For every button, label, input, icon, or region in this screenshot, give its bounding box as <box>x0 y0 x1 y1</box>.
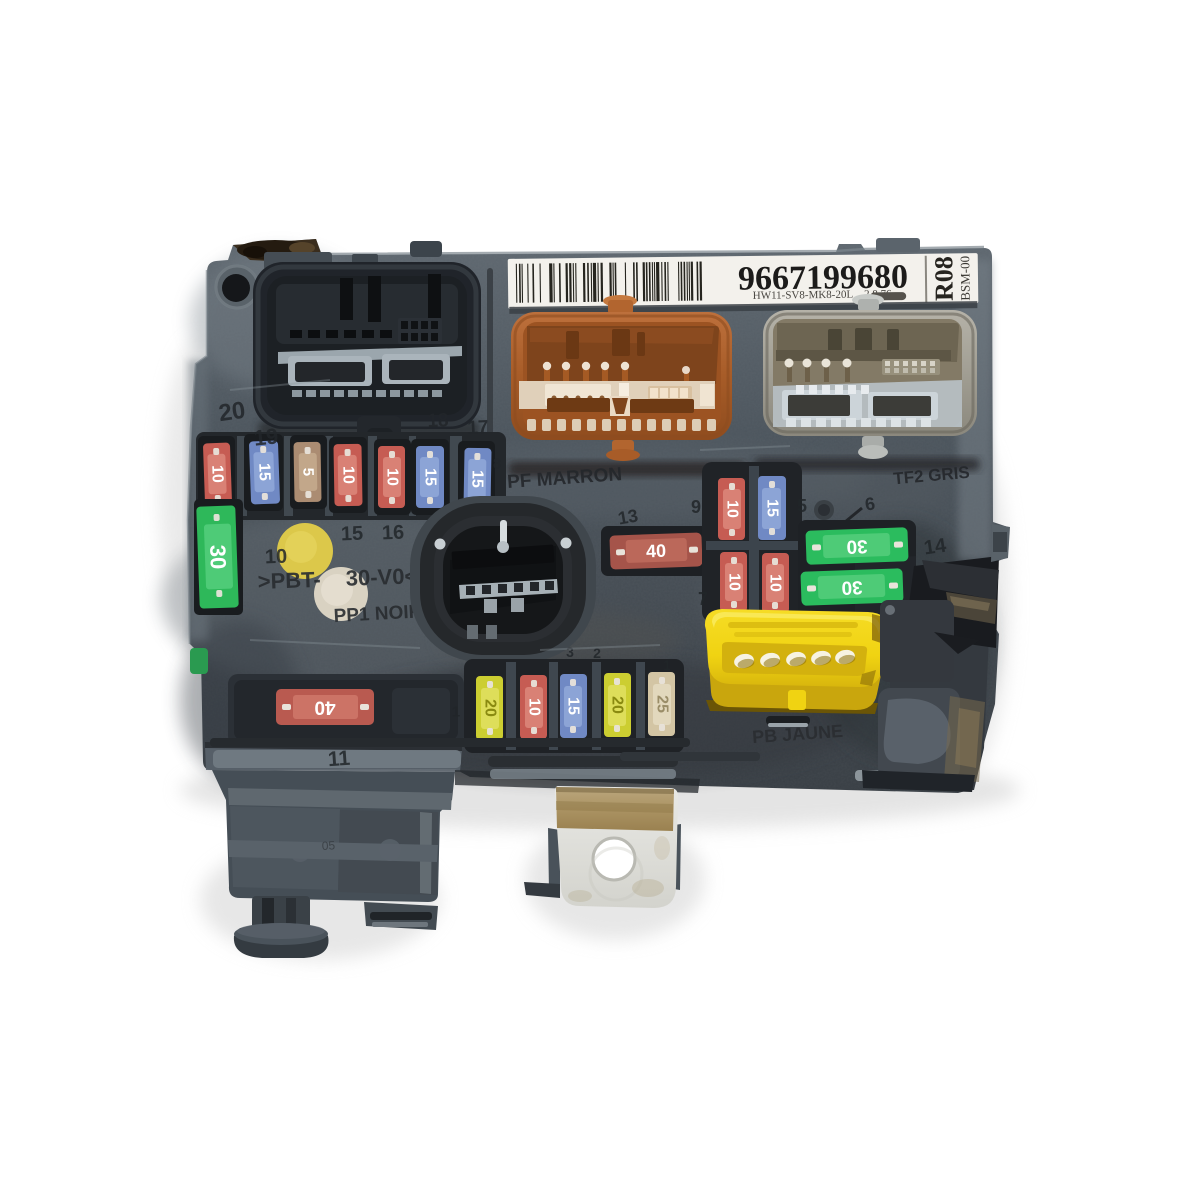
svg-text:>PBT-: >PBT- <box>257 567 321 594</box>
svg-text:20: 20 <box>609 696 626 714</box>
svg-text:18: 18 <box>427 410 449 432</box>
svg-text:14: 14 <box>922 534 948 559</box>
svg-text:15: 15 <box>255 463 273 481</box>
svg-text:19: 19 <box>253 423 280 450</box>
svg-text:10: 10 <box>339 466 356 484</box>
svg-text:5: 5 <box>299 468 316 477</box>
svg-text:10: 10 <box>384 468 401 486</box>
svg-text:15: 15 <box>764 499 781 517</box>
svg-text:05: 05 <box>321 838 335 853</box>
svg-text:10: 10 <box>208 465 226 483</box>
svg-text:40: 40 <box>314 697 335 718</box>
svg-text:30-V0<: 30-V0< <box>345 563 417 590</box>
svg-text:11: 11 <box>327 747 351 772</box>
svg-text:17: 17 <box>467 417 489 439</box>
svg-text:10: 10 <box>264 546 287 569</box>
svg-text:30: 30 <box>205 544 231 569</box>
svg-text:7: 7 <box>698 589 708 609</box>
svg-text:30: 30 <box>841 576 863 598</box>
svg-text:20: 20 <box>482 699 499 717</box>
svg-text:10: 10 <box>526 698 543 716</box>
svg-text:5: 5 <box>797 496 807 516</box>
svg-text:20: 20 <box>217 397 247 427</box>
svg-text:9: 9 <box>691 497 701 517</box>
svg-text:15: 15 <box>565 697 582 715</box>
svg-text:8: 8 <box>493 456 501 473</box>
svg-text:13: 13 <box>616 505 639 528</box>
svg-text:30: 30 <box>846 535 868 557</box>
svg-text:BSM-00: BSM-00 <box>957 256 973 301</box>
svg-text:1: 1 <box>452 704 460 721</box>
svg-text:15: 15 <box>422 468 439 486</box>
svg-text:10: 10 <box>726 573 743 591</box>
svg-text:10: 10 <box>767 574 784 592</box>
svg-text:3: 3 <box>566 644 574 660</box>
svg-text:R08: R08 <box>929 256 959 301</box>
svg-text:16: 16 <box>381 522 404 545</box>
svg-text:1: 1 <box>663 657 671 673</box>
svg-text:15: 15 <box>340 523 363 546</box>
svg-text:10: 10 <box>724 500 741 518</box>
svg-text:40: 40 <box>646 541 667 562</box>
svg-text:25: 25 <box>654 695 671 713</box>
svg-text:15: 15 <box>468 470 485 488</box>
